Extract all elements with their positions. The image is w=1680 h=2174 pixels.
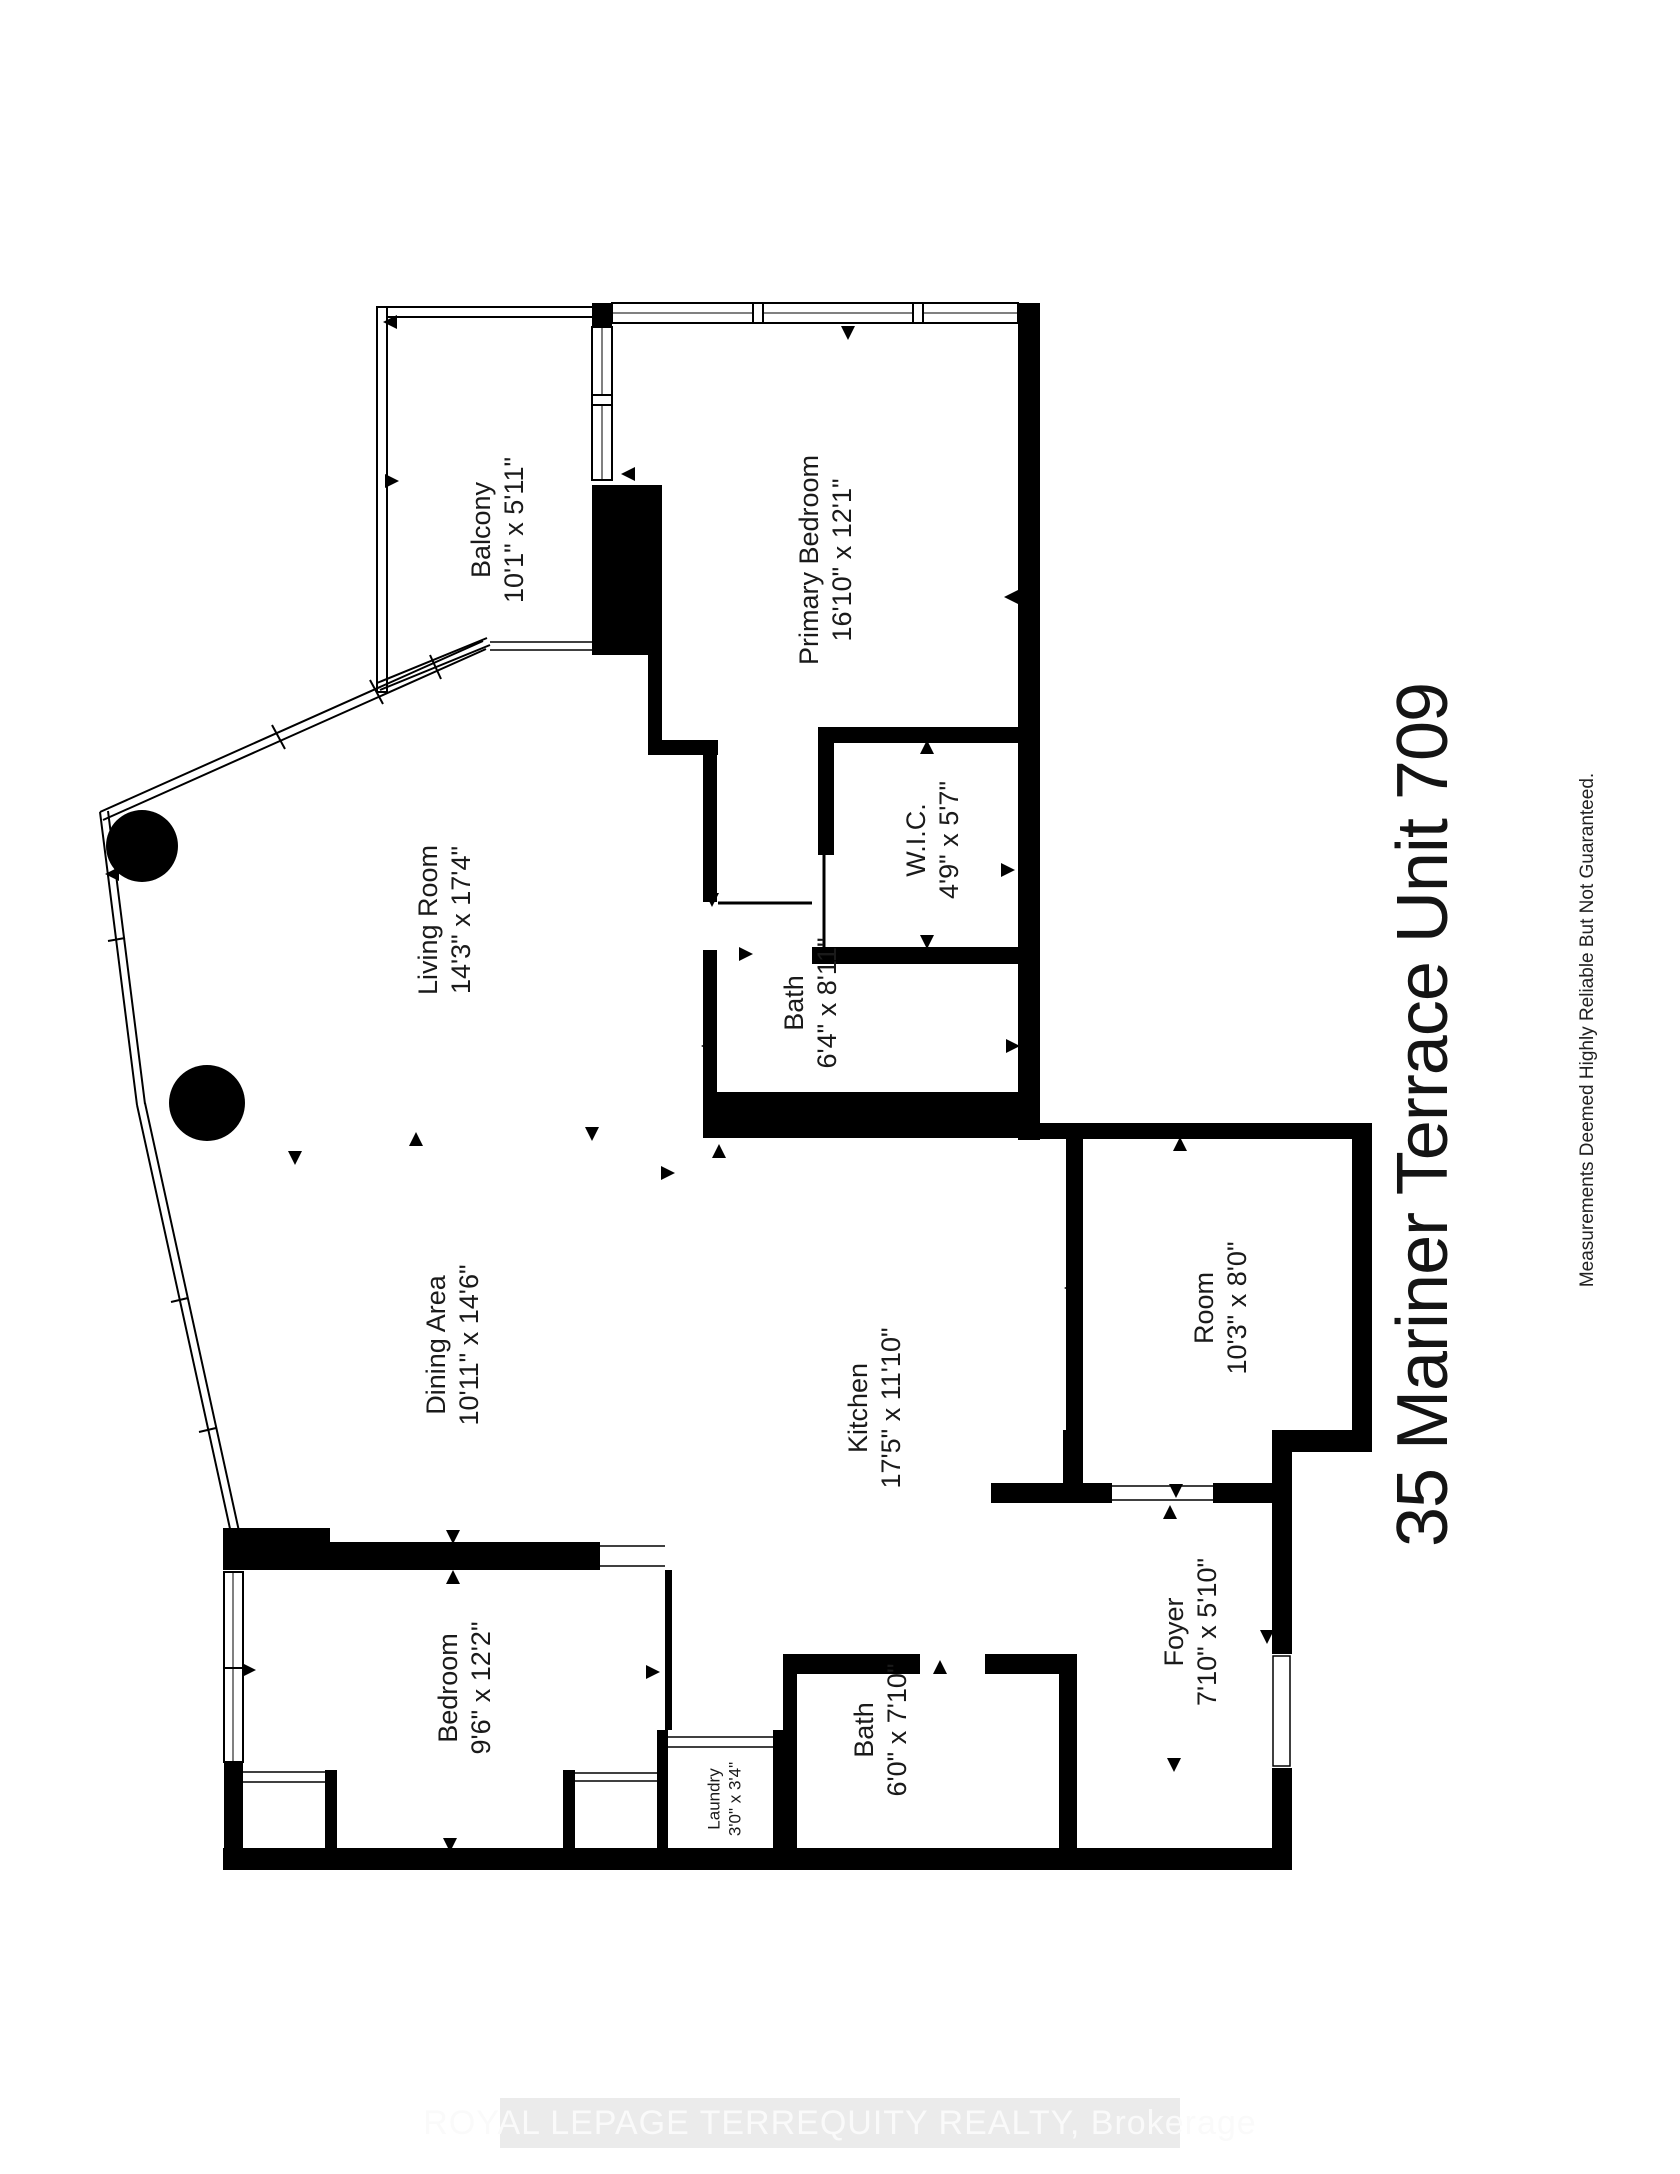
wall-bath-upper-left-b: [703, 950, 717, 1092]
wall-pier: [592, 485, 662, 655]
door-arrow-icon: [242, 1663, 256, 1677]
watermark: ROYAL LEPAGE TERREQUITY REALTY, Brokerag…: [423, 2098, 1256, 2148]
door-arrow-icon: [933, 1660, 947, 1674]
room-label-foyer: Foyer7'10" x 5'10": [1159, 1558, 1222, 1706]
balcony-rail-top: [377, 307, 593, 317]
plan-disclaimer: Measurements Deemed Highly Reliable But …: [1577, 773, 1598, 1287]
floorplan-svg: Balcony10'1" x 5'11"Primary Bedroom16'10…: [0, 0, 1680, 2174]
balcony-sliding-door: [490, 642, 592, 650]
wall-right-upper: [1018, 303, 1040, 1140]
room-label-primary-bedroom: Primary Bedroom16'10" x 12'1": [794, 455, 857, 665]
wall-foyer-left: [1059, 1654, 1077, 1848]
door-arrow-icon: [621, 467, 635, 481]
wall-wic-bottom: [812, 947, 1030, 964]
door-arrow-icon: [585, 1127, 599, 1141]
wall-room-left: [1066, 1138, 1083, 1483]
door-arrow-icon: [1006, 1039, 1020, 1053]
wall-kitchen-bottom-b: [1213, 1483, 1272, 1503]
door-arrow-icon: [646, 1665, 660, 1679]
door-arrow-icon: [446, 1530, 460, 1544]
floorplan-page: Balcony10'1" x 5'11"Primary Bedroom16'10…: [0, 0, 1680, 2174]
window-top-sash-1: [753, 303, 763, 323]
wall-wic-left: [818, 743, 834, 855]
kitchen-foyer-opening: [1112, 1486, 1213, 1500]
door-arrow-icon: [661, 1166, 675, 1180]
room-label-kitchen: Kitchen17'5" x 11'10": [843, 1327, 906, 1488]
room-label-wic: W.I.C.4'9" x 5'7": [901, 781, 964, 899]
door-arrow-icon: [712, 1144, 726, 1158]
window-balcony-right-sash: [592, 395, 612, 405]
door-arrow-icon: [1260, 1630, 1274, 1644]
door-arrow-icon: [1163, 1505, 1177, 1519]
closet-doors-right: [575, 1773, 657, 1781]
wall-bath-upper-left-a: [703, 755, 717, 902]
room-label-living-room: Living Room14'3" x 17'4": [413, 845, 476, 995]
column-icon: [169, 1065, 245, 1141]
wall-pier-stub: [648, 655, 662, 745]
room-label-dining-area: Dining Area10'11" x 14'6": [421, 1264, 484, 1425]
door-arrow-icon: [288, 1151, 302, 1165]
wall-band-left: [703, 1092, 1040, 1138]
wall-room-notch: [1272, 1430, 1372, 1452]
room-label-balcony: Balcony10'1" x 5'11": [466, 457, 529, 603]
wall-laundry-right: [773, 1730, 797, 1850]
wall-hall-thin: [665, 1570, 672, 1730]
closet-doors-left: [243, 1772, 325, 1782]
wall-band-right: [1040, 1123, 1372, 1139]
watermark-text: ROYAL LEPAGE TERREQUITY REALTY, Brokerag…: [423, 2104, 1256, 2142]
door-arrow-icon: [446, 1570, 460, 1584]
wall-balcony-block: [592, 303, 612, 327]
balcony-rail-left: [377, 307, 387, 692]
entry-door-opening: [1273, 1656, 1290, 1766]
plan-title: 35 Mariner Terrace Unit 709: [1383, 683, 1463, 1547]
door-arrow-icon: [920, 935, 934, 949]
glass-wall-segment-3: [137, 1103, 244, 1556]
door-arrow-icon: [385, 474, 399, 488]
wall-closet-stub-right: [563, 1770, 575, 1853]
room-label-bath-lower: Bath6'0" x 7'10": [849, 1663, 912, 1796]
room-label-laundry: Laundry3'0" x 3'4": [705, 1762, 745, 1836]
door-arrow-icon: [841, 326, 855, 340]
room-labels: Balcony10'1" x 5'11"Primary Bedroom16'10…: [413, 455, 1252, 1836]
wall-wic-top: [818, 727, 1030, 743]
room-label-room: Room10'3" x 8'0": [1189, 1241, 1252, 1374]
door-arrow-icon: [1004, 590, 1018, 604]
columns: [106, 810, 245, 1141]
glass-wall-sashes: [108, 680, 383, 1432]
door-arrow-icon: [409, 1132, 423, 1146]
glass-wall-segment-1: [100, 641, 486, 820]
window-top-sash-2: [913, 303, 923, 323]
bedroom-opening: [600, 1546, 665, 1566]
laundry-doors: [668, 1737, 773, 1747]
door-arrow-icon: [1001, 863, 1015, 877]
wall-closet-stub-left: [325, 1770, 337, 1853]
wall-kitchen-bottom-a: [991, 1483, 1112, 1503]
room-label-bedroom: Bedroom9'6" x 12'2": [433, 1621, 496, 1754]
door-arrow-icon: [1169, 1484, 1183, 1498]
wall-living-se: [648, 740, 718, 755]
openings: [243, 855, 1290, 1782]
room-label-bath-upper: Bath6'4" x 8'11": [779, 937, 842, 1068]
wall-foyer-right-upper: [1272, 1452, 1292, 1654]
wall-bedroom-corner-lower: [224, 1762, 243, 1850]
wall-laundry-left: [657, 1730, 668, 1850]
wall-bedroom-top: [223, 1542, 600, 1570]
door-arrow-icon: [739, 947, 753, 961]
door-arrow-icon: [1173, 1137, 1187, 1151]
door-arrow-icon: [1167, 1758, 1181, 1772]
wall-bottom: [223, 1848, 1292, 1870]
